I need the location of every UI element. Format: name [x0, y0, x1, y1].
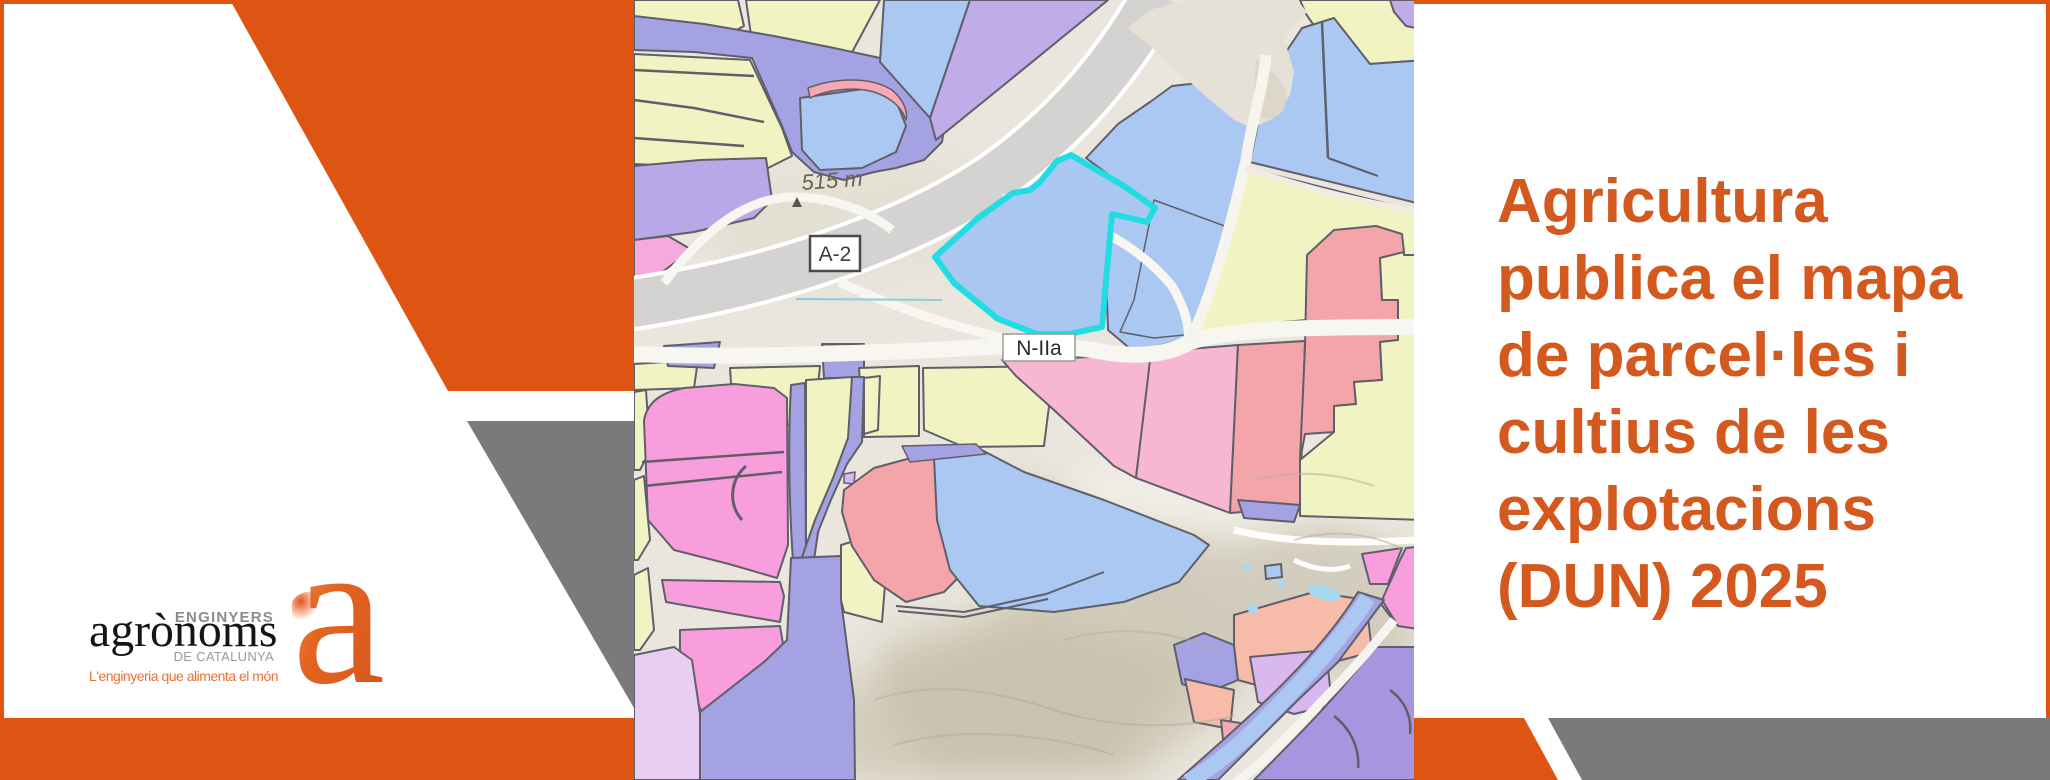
svg-text:A-2: A-2 [819, 243, 852, 266]
svg-text:N-IIa: N-IIa [1016, 337, 1062, 360]
svg-text:a: a [292, 565, 385, 695]
svg-text:515 m: 515 m [801, 166, 864, 195]
